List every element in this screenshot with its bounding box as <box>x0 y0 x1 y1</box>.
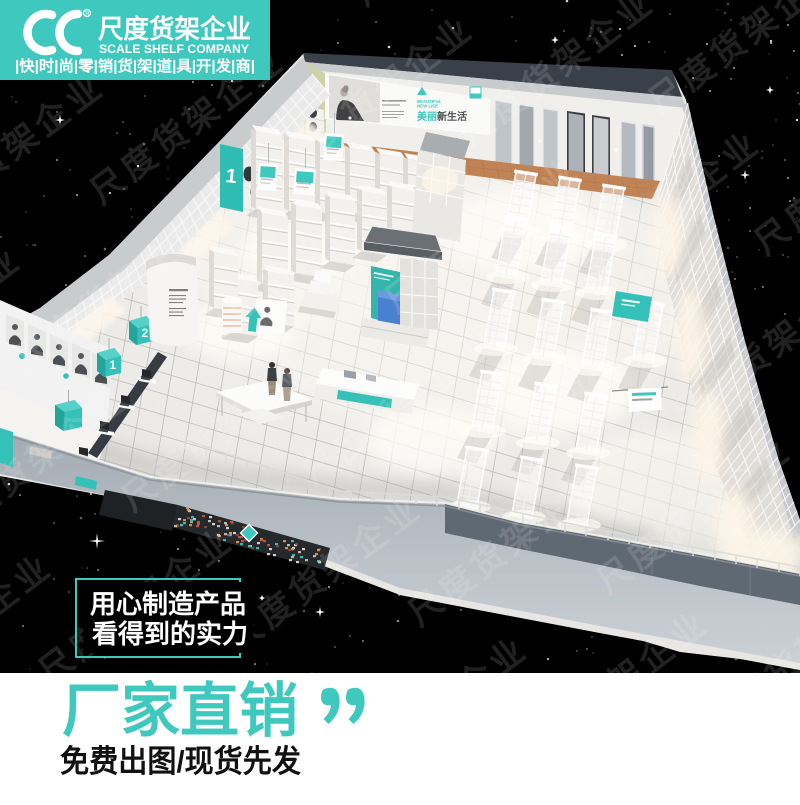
svg-text:用心制造产品: 用心制造产品 <box>90 589 246 619</box>
svg-text:1: 1 <box>109 358 116 372</box>
svg-text:2: 2 <box>141 326 148 340</box>
svg-text:1: 1 <box>224 165 237 188</box>
svg-text:|快|时|尚|零|销|货|架|道|具|开|发|商|: |快|时|尚|零|销|货|架|道|具|开|发|商| <box>15 57 255 75</box>
svg-text:尺度货架企业: 尺度货架企业 <box>98 14 251 44</box>
svg-text:SCALE SHELF COMPANY: SCALE SHELF COMPANY <box>99 42 249 56</box>
svg-text:R: R <box>85 12 90 18</box>
svg-text:免费出图/现货先发: 免费出图/现货先发 <box>60 744 301 779</box>
svg-text:NEW LIFE: NEW LIFE <box>417 104 438 109</box>
svg-text:厂家直销: 厂家直销 <box>62 678 298 744</box>
svg-text:看得到的实力: 看得到的实力 <box>92 619 248 649</box>
